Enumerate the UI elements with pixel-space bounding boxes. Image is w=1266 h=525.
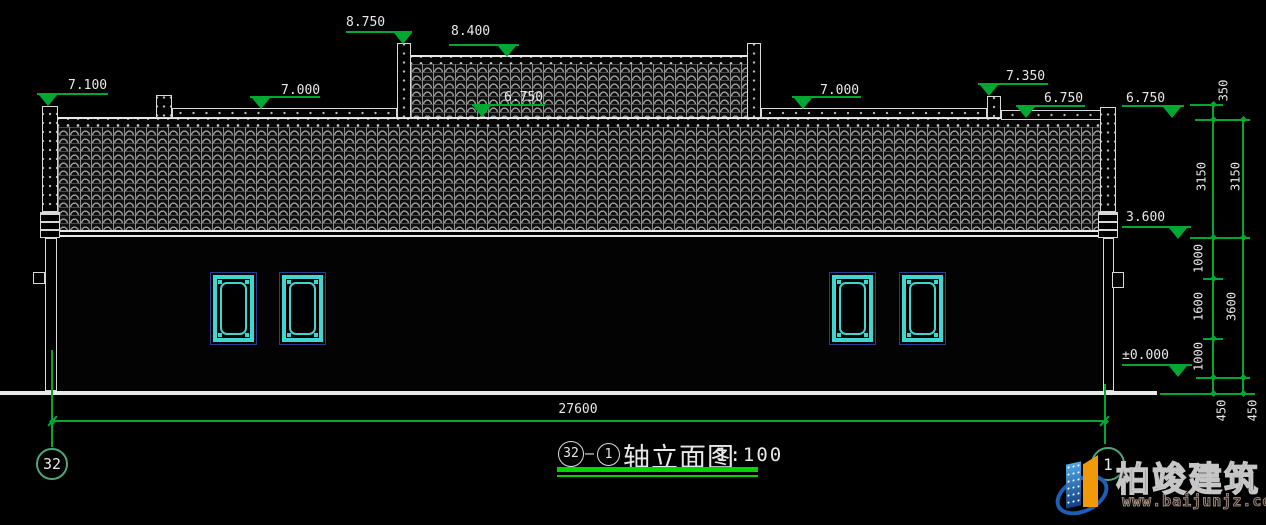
dim-label-3150-inner: 3150 <box>1196 155 1209 199</box>
dim-tick <box>1239 115 1246 122</box>
level-triangle-icon <box>498 46 516 57</box>
column-left-upper <box>42 106 58 212</box>
elevation-marker-6750-center: 6.750 <box>504 90 543 105</box>
watermark-logo <box>1054 445 1120 520</box>
level-triangle-icon <box>1169 366 1187 377</box>
window <box>899 272 946 345</box>
column-right-upper <box>1100 107 1116 212</box>
elevation-drawing-canvas: 8.750 8.400 7.100 7.000 6.750 7.000 7.35… <box>0 0 1266 525</box>
parapet-post-left <box>156 95 172 118</box>
dim-tick <box>1209 115 1216 122</box>
roof-ridge-dot-strip <box>58 119 1102 127</box>
elevation-marker-6750-right-inner: 6.750 <box>1044 91 1083 106</box>
dim-tick <box>1239 389 1246 396</box>
title-axis-bubble-end: 1 <box>597 443 620 466</box>
axis-bubble-left: 32 <box>36 448 68 480</box>
window-inner-pane <box>909 282 936 335</box>
drawing-scale: 1:100 <box>716 444 783 466</box>
center-raised-roof <box>411 55 747 117</box>
title-separator: – <box>585 445 594 463</box>
level-triangle-icon <box>980 85 998 96</box>
eave-line-lower <box>58 235 1102 237</box>
dim-tick <box>1209 274 1216 281</box>
title-axis-bubble-start: 32 <box>558 441 584 467</box>
window <box>829 272 876 345</box>
dim-tick <box>1239 373 1246 380</box>
extension-line-right <box>1104 384 1106 444</box>
main-roof <box>57 117 1103 237</box>
level-triangle-icon <box>1017 107 1035 118</box>
window-inner-pane <box>289 282 316 335</box>
column-left-bracket <box>33 272 45 284</box>
window-inner-pane <box>220 282 247 335</box>
roof-tile-hatch <box>58 127 1102 230</box>
elevation-marker-7100: 7.100 <box>68 78 107 93</box>
center-pillar-left <box>397 43 411 118</box>
elevation-marker-8400: 8.400 <box>451 24 490 39</box>
coping-band-left <box>172 108 397 118</box>
dim-tick <box>1209 100 1216 107</box>
window-frame <box>213 275 254 342</box>
dim-label-1600: 1600 <box>1193 285 1206 329</box>
window <box>279 272 326 345</box>
dim-label-350: 350 <box>1218 69 1231 113</box>
level-triangle-icon <box>394 33 412 44</box>
elevation-marker-8750: 8.750 <box>346 15 385 30</box>
elevation-marker-0000: ±0.000 <box>1122 348 1169 363</box>
dim-line-inner-vertical <box>1212 104 1214 394</box>
parapet-post-right <box>987 96 1001 118</box>
watermark-url: www.baijunjz.com <box>1122 492 1266 510</box>
dim-label-total-width: 27600 <box>545 402 611 417</box>
window-frame <box>282 275 323 342</box>
dim-label-450-outer: 450 <box>1247 389 1260 433</box>
column-right-bracket <box>1112 272 1124 288</box>
elevation-marker-6750-right-outer: 6.750 <box>1126 91 1165 106</box>
dim-tick <box>1209 233 1216 240</box>
level-triangle-icon <box>1163 107 1181 118</box>
center-pillar-right <box>747 43 761 118</box>
center-tile-hatch <box>411 64 747 117</box>
window-frame <box>832 275 873 342</box>
title-underline-thick <box>557 467 758 472</box>
window-frame <box>902 275 943 342</box>
window <box>210 272 257 345</box>
logo-ellipse-swoosh <box>1049 467 1115 524</box>
extension-line-left <box>51 350 53 447</box>
watermark: 柏竣建筑 www.baijunjz.com <box>1054 440 1266 522</box>
level-triangle-icon <box>794 98 812 109</box>
elevation-marker-7350: 7.350 <box>1006 69 1045 84</box>
dim-tick <box>1209 373 1216 380</box>
center-ridge-dot-strip <box>411 57 747 64</box>
logo-building-blue <box>1066 461 1081 508</box>
dim-label-1000-upper: 1000 <box>1193 237 1206 281</box>
logo-building-orange <box>1083 455 1098 507</box>
elevation-marker-3600: 3.600 <box>1126 210 1165 225</box>
level-triangle-icon <box>252 98 270 109</box>
level-triangle-icon <box>1169 228 1187 239</box>
dim-tick <box>1239 233 1246 240</box>
dim-label-450-inner: 450 <box>1216 389 1229 433</box>
column-right-capital <box>1098 212 1118 238</box>
dim-tick <box>1209 334 1216 341</box>
bottom-dim-line <box>52 420 1105 422</box>
dim-label-3600: 3600 <box>1226 285 1239 329</box>
column-right-shaft <box>1103 238 1114 391</box>
dim-label-1000-lower: 1000 <box>1193 335 1206 379</box>
ground-line <box>0 391 1157 395</box>
level-triangle-icon <box>39 95 57 106</box>
coping-band-right <box>761 108 987 118</box>
level-triangle-icon <box>473 106 491 117</box>
dim-label-3150-outer: 3150 <box>1230 155 1243 199</box>
column-left-capital <box>40 212 60 238</box>
window-inner-pane <box>839 282 866 335</box>
title-underline-thin <box>557 475 758 477</box>
